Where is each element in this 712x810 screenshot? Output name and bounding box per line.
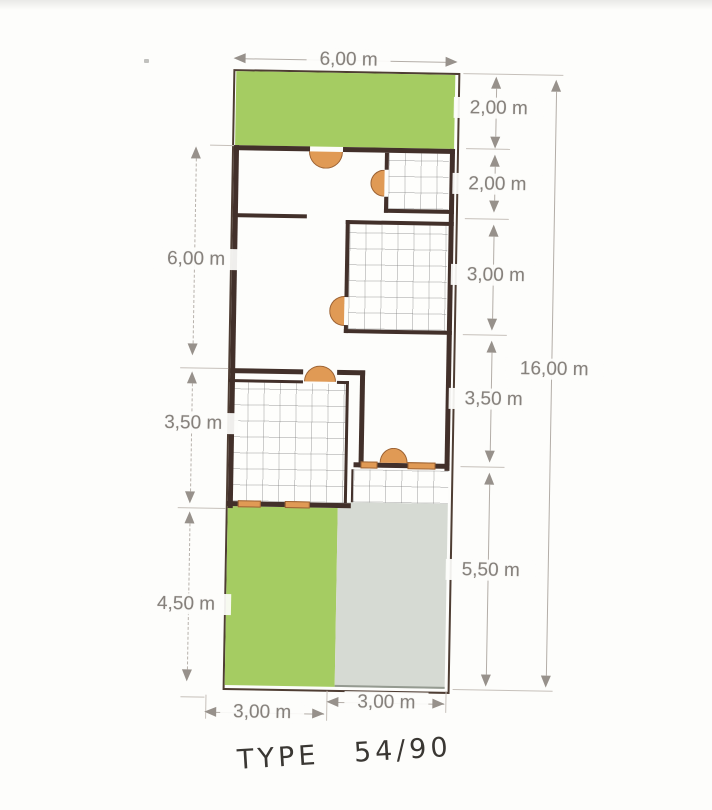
arrow-up-icon	[489, 225, 499, 237]
floor-plan: 6,00 m 2,00 m 2,00 m 3,00 m 3,50 m 5,50 …	[0, 0, 712, 810]
arrow-up-icon	[551, 80, 561, 92]
arrow-down-icon	[182, 669, 192, 681]
tiled-room-top-right	[388, 153, 449, 210]
arrow-down-icon	[481, 674, 491, 686]
dim-label-left-1: 3,50 m	[148, 412, 238, 435]
arrow-down-icon	[485, 451, 495, 463]
dim-label-top: 6,00 m	[306, 48, 390, 70]
arrow-up-icon	[184, 511, 194, 523]
dim-label-bottom-0: 3,00 m	[220, 701, 304, 723]
arrow-up-icon	[191, 146, 201, 158]
extension-tick	[210, 145, 234, 146]
bedroom-window-marker	[360, 461, 377, 468]
dim-label-left-2: 4,50 m	[141, 593, 231, 616]
extension-tick	[463, 73, 563, 76]
arrow-up-icon	[491, 77, 501, 89]
arrow-down-icon	[187, 343, 197, 355]
dim-label-right-3: 3,50 m	[449, 388, 539, 411]
dim-label-right-1: 2,00 m	[452, 173, 542, 196]
arrow-left-icon	[326, 697, 338, 707]
arrow-down-icon	[541, 676, 551, 688]
terrace-tiles	[353, 469, 449, 504]
arrow-left-icon	[204, 707, 216, 717]
extension-tick	[180, 367, 228, 369]
dim-label-right-4: 5,50 m	[446, 559, 536, 582]
dimension-line	[546, 92, 557, 676]
arrow-up-icon	[187, 371, 197, 383]
dim-label-right-2: 3,00 m	[451, 264, 541, 287]
arrow-right-icon	[445, 57, 457, 67]
dimension-line	[190, 383, 193, 491]
dim-label-right-0: 2,00 m	[454, 97, 544, 120]
arrow-down-icon	[489, 201, 499, 213]
bathroom-tiles	[348, 224, 448, 331]
kitchen-tiles	[230, 382, 346, 503]
extension-tick	[445, 691, 446, 713]
extension-tick	[178, 507, 226, 509]
extension-tick	[453, 689, 553, 692]
arrow-right-icon	[432, 699, 444, 709]
extension-tick	[463, 334, 507, 336]
arrow-down-icon	[185, 491, 195, 503]
arrow-up-icon	[490, 155, 500, 167]
backyard-garden	[225, 506, 338, 687]
extension-tick	[466, 148, 510, 150]
arrow-down-icon	[490, 137, 500, 149]
dim-label-total-right: 16,00 m	[505, 358, 603, 381]
extension-tick	[460, 466, 504, 468]
arrow-left-icon	[234, 53, 246, 63]
arrow-right-icon	[312, 709, 324, 719]
arrow-down-icon	[487, 319, 497, 331]
top-right-room-wall-upper	[385, 153, 389, 170]
dim-label-left-0: 6,00 m	[151, 248, 241, 271]
arrow-up-icon	[484, 473, 494, 485]
extension-tick	[465, 218, 509, 220]
kitchen-window-marker	[238, 500, 261, 507]
arrow-up-icon	[487, 341, 497, 353]
patio-carport	[335, 502, 448, 689]
front-yard	[235, 71, 455, 149]
dim-label-bottom-1: 3,00 m	[344, 691, 428, 713]
extension-tick	[180, 696, 204, 697]
kitchen-window-marker	[285, 501, 310, 508]
bedroom-window-marker	[407, 462, 435, 469]
